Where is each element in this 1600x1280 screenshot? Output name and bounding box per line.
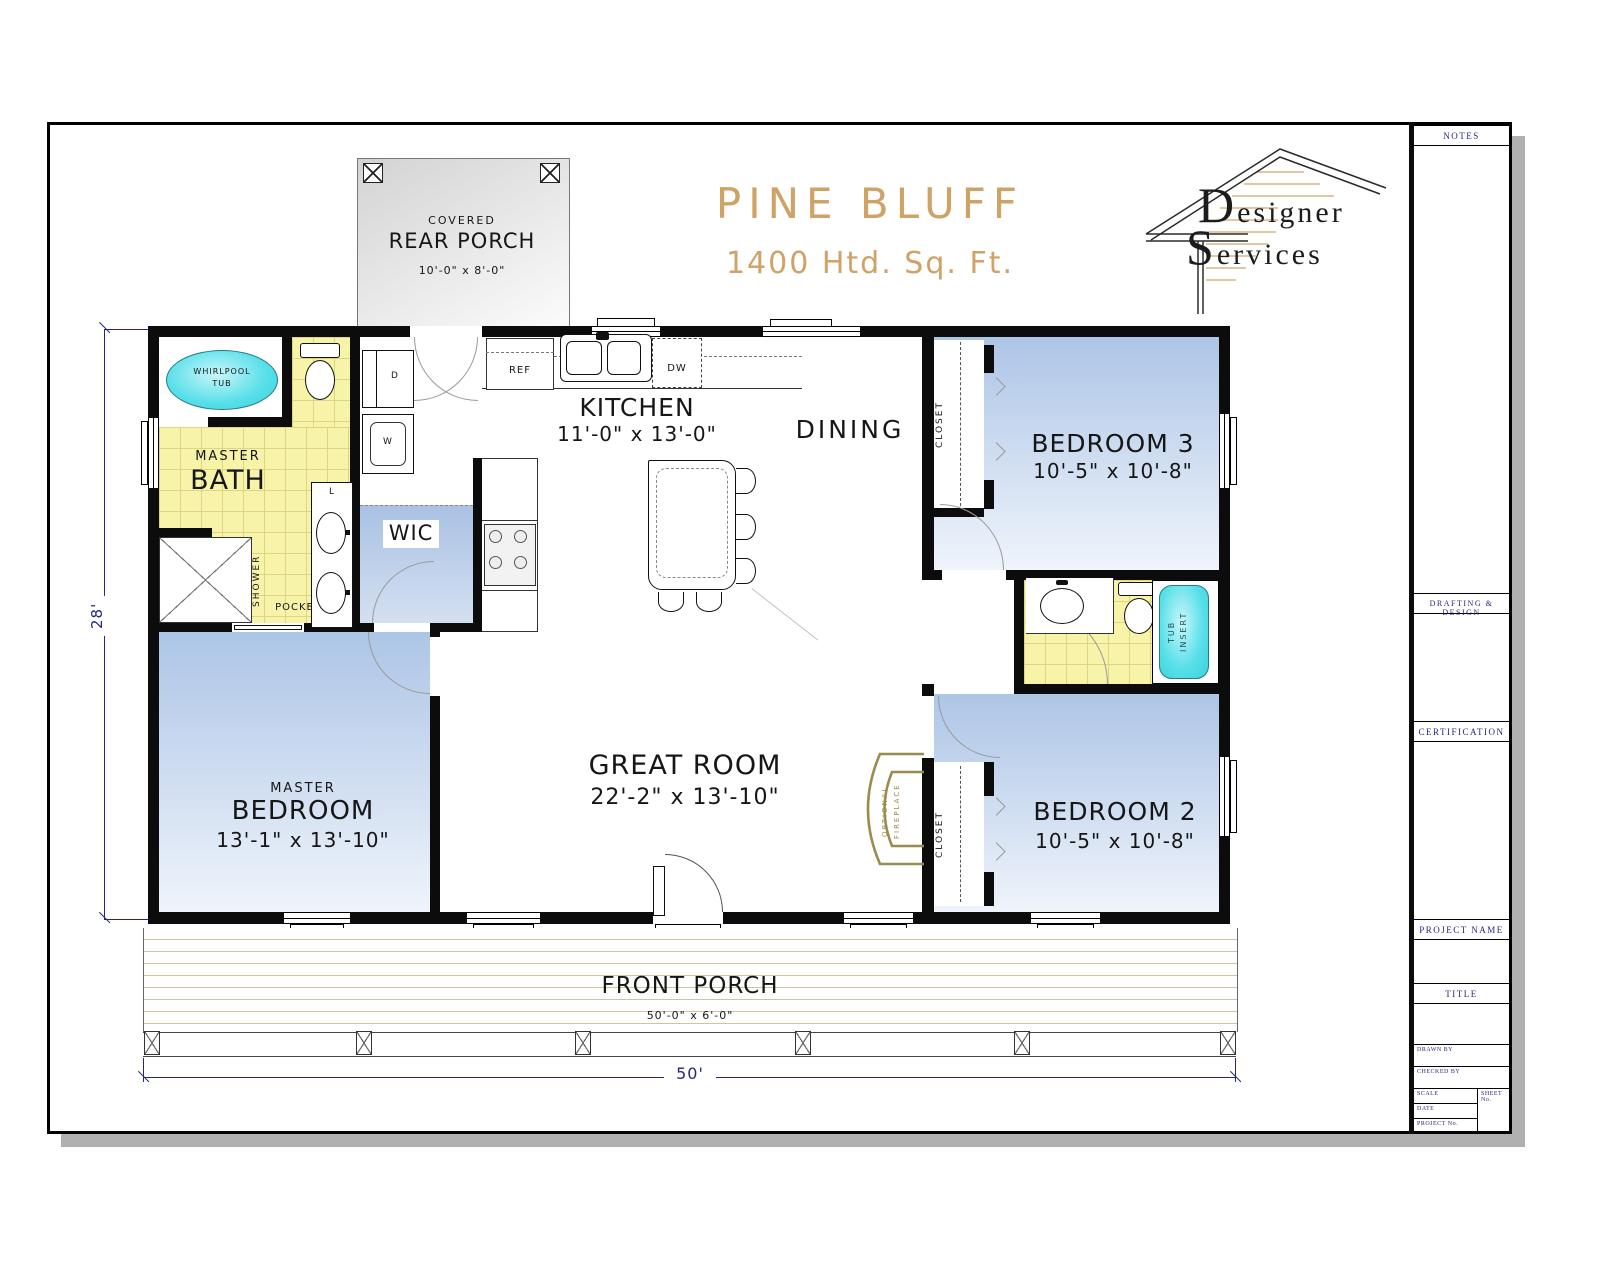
porch-post-2 <box>356 1031 372 1055</box>
field-project-no: PROJECT No. <box>1414 1118 1477 1131</box>
porch-post-4 <box>795 1031 811 1055</box>
porch-post-3 <box>575 1031 591 1055</box>
field-drawn-by: DRAWN BY <box>1414 1044 1509 1066</box>
wall-bath2-west <box>1014 580 1024 684</box>
kitchen-faucet-icon <box>596 332 609 340</box>
kitchen-island-inset <box>656 468 728 578</box>
plan-subtitle: 1400 Htd. Sq. Ft. <box>670 248 1070 280</box>
bedroom2-closet-label: CLOSET <box>936 780 954 890</box>
refrigerator <box>486 338 554 390</box>
titleblock-title-header: TITLE <box>1414 983 1509 1004</box>
master-toilet-bowl <box>305 360 335 400</box>
titleblock-drafting-header: DRAFTING & DESIGN <box>1414 593 1509 614</box>
wall-bath-laundry <box>350 337 360 483</box>
whirlpool-tub-label-1: WHIRLPOOL <box>172 368 272 376</box>
burner-4 <box>514 556 527 569</box>
plan-title: PINE BLUFF <box>670 182 1070 226</box>
great-room-dims: 22'-2" x 13'-10" <box>545 786 825 809</box>
hall-toilet-bowl <box>1124 598 1154 634</box>
bedroom2-dims: 10'-5" x 10'-8" <box>975 831 1255 852</box>
master-bedroom-label-2: BEDROOM <box>203 798 403 825</box>
drawing-sheet: NOTES DRAFTING & DESIGN CERTIFICATION PR… <box>0 0 1600 1280</box>
front-porch-rail-line <box>143 1032 1236 1033</box>
bedroom3-closet-jamb-top <box>984 345 994 373</box>
burner-2 <box>514 530 527 543</box>
master-sink-1 <box>316 512 346 554</box>
rear-porch-post-right <box>540 163 560 183</box>
burner-1 <box>489 530 502 543</box>
bedroom3-closet-jamb-bottom <box>984 480 994 509</box>
hall-bath-faucet-icon <box>1056 580 1068 585</box>
dim-depth-ext-top <box>104 329 148 330</box>
wall-kitchen-west <box>473 458 482 632</box>
pocket-door <box>234 625 302 630</box>
sheet-shadow-right <box>1512 136 1525 1146</box>
rear-porch-label: REAR PORCH <box>362 230 562 252</box>
master-sink-2 <box>316 572 346 614</box>
bedroom2-label: BEDROOM 2 <box>975 799 1255 825</box>
wall-mbr-east <box>430 696 440 912</box>
rear-porch-post-left <box>363 163 383 183</box>
wall-wing-upper <box>922 337 934 570</box>
logo-word-services: Services <box>1186 218 1323 276</box>
whirlpool-tub-label-2: TUB <box>172 380 272 388</box>
island-chair-5 <box>696 592 722 612</box>
wall-under-tub <box>208 417 292 427</box>
titleblock-certification-header: CERTIFICATION <box>1414 721 1509 742</box>
wall-wic-bottom-left <box>360 623 374 632</box>
kitchen-window-sill <box>597 318 655 327</box>
island-chair-4 <box>658 592 684 612</box>
wall-mbr-stub <box>430 623 440 637</box>
dining-window <box>763 326 860 337</box>
rear-porch-label-covered: COVERED <box>362 215 562 227</box>
dim-width-label: 50' <box>664 1066 716 1083</box>
bedroom3-dims: 10'-5" x 10'-8" <box>973 461 1253 482</box>
refrigerator-label: REF <box>486 366 554 377</box>
shower-stall <box>159 537 252 623</box>
kitchen-sink-bowl-left <box>566 341 602 375</box>
wall-wing-lower-stub <box>922 684 934 696</box>
master-toilet-tank <box>300 343 340 358</box>
front-porch-label: FRONT PORCH <box>440 974 940 998</box>
master-bedroom-dims: 13'-1" x 13'-10" <box>193 830 413 851</box>
field-date: DATE <box>1414 1103 1477 1118</box>
fireplace-label-2: FIREPLACE <box>894 768 905 854</box>
front-porch-edge-line <box>143 1056 1236 1057</box>
dining-window-sill <box>770 319 832 327</box>
bedroom3-label: BEDROOM 3 <box>973 431 1253 457</box>
wall-tub-toilet <box>282 337 292 425</box>
wic-dashed-shelf <box>360 505 473 506</box>
bedroom3-closet-shelf <box>960 342 961 506</box>
dryer-label: D <box>376 372 414 381</box>
front-porch-dims: 50'-0" x 6'-0" <box>440 1010 940 1022</box>
wall-exterior-top <box>148 326 1230 337</box>
rear-porch-dims: 10'-0" x 8'-0" <box>362 265 562 277</box>
master-bath-label-1: MASTER <box>168 450 288 464</box>
hall-bath-sink <box>1040 588 1084 624</box>
dining-label: DINING <box>760 417 940 443</box>
wic-label: WIC <box>383 522 439 544</box>
wall-shower-top <box>148 528 212 537</box>
bedroom2-closet-jamb-bottom <box>984 872 994 906</box>
master-bath-label-2: BATH <box>168 467 288 495</box>
tub-insert-label-1: TUB <box>1168 600 1178 664</box>
dishwasher-label: DW <box>652 364 702 375</box>
bedroom2-closet-jamb-top <box>984 762 994 796</box>
titleblock-notes-header: NOTES <box>1414 125 1509 146</box>
rear-door-opening <box>410 326 482 337</box>
porch-post-5 <box>1014 1031 1030 1055</box>
kitchen-west-counter-line-2 <box>482 590 538 591</box>
master-bedroom-label-1: MASTER <box>243 782 363 796</box>
great-room-label: GREAT ROOM <box>545 752 825 780</box>
master-sink-1-faucet-icon <box>345 530 350 535</box>
front-door-leaf <box>653 866 665 916</box>
linen-label: L <box>311 488 353 497</box>
sheet-shadow-bottom <box>61 1134 1525 1147</box>
field-scale: SCALE <box>1414 1088 1477 1103</box>
master-bath-window <box>148 418 159 488</box>
master-bath-window-sill <box>141 421 148 485</box>
kitchen-west-counter-line-1 <box>482 520 538 521</box>
dim-depth-label: 28' <box>90 596 106 636</box>
field-sheet-no: SHEET No. <box>1477 1088 1509 1131</box>
kitchen-sink-bowl-right <box>607 341 641 375</box>
bedroom2-closet-shelf <box>960 766 961 902</box>
washer-label: W <box>362 438 414 447</box>
dim-depth-ext-bottom <box>104 919 148 920</box>
titleblock-project-name-header: PROJECT NAME <box>1414 919 1509 940</box>
porch-post-1 <box>144 1031 160 1055</box>
island-chair-3 <box>736 558 756 584</box>
wall-bath-bottom-left <box>148 623 232 632</box>
refrigerator-cabinet-dash <box>486 352 554 353</box>
kitchen-dims: 11'-0" x 13'-0" <box>517 424 757 445</box>
wall-hall-top-left <box>922 570 942 580</box>
tub-insert-label-2: INSERT <box>1180 600 1190 664</box>
field-checked-by: CHECKED BY <box>1414 1066 1509 1088</box>
master-sink-2-faucet-icon <box>345 590 350 595</box>
wall-bath2-bottom <box>1014 684 1230 694</box>
island-chair-2 <box>736 514 756 540</box>
master-bedroom-front-window <box>284 912 350 924</box>
kitchen-label: KITCHEN <box>517 395 757 421</box>
great-room-window-right <box>844 912 913 924</box>
great-room-window-left <box>467 912 540 924</box>
island-chair-1 <box>736 468 756 494</box>
burner-3 <box>489 556 502 569</box>
porch-post-6 <box>1220 1031 1236 1055</box>
fireplace-label-1: OPTIONAL <box>882 768 893 854</box>
bedroom2-front-window <box>1031 912 1100 924</box>
